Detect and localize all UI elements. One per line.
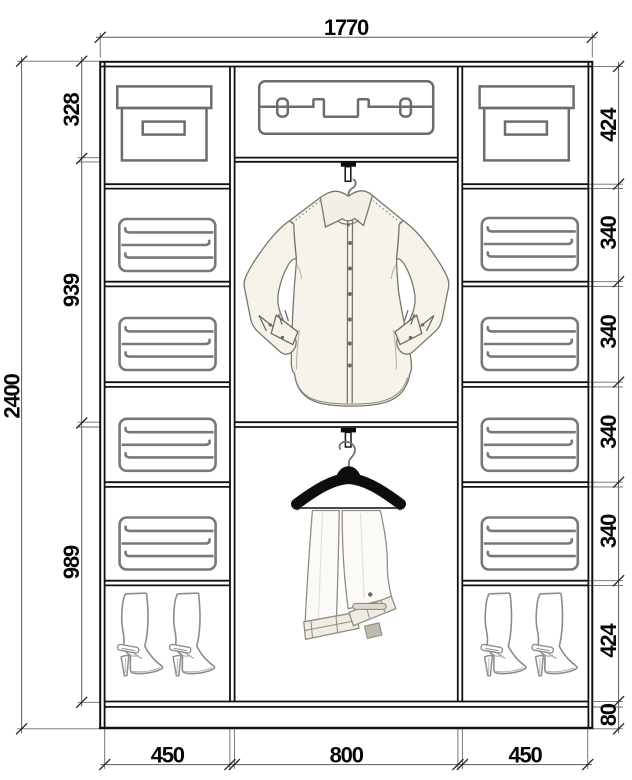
svg-text:340: 340 (596, 314, 621, 348)
svg-text:80: 80 (596, 703, 621, 726)
svg-text:340: 340 (596, 215, 621, 249)
svg-text:939: 939 (59, 273, 84, 307)
svg-text:1770: 1770 (324, 15, 369, 40)
svg-text:450: 450 (151, 743, 185, 768)
svg-text:424: 424 (596, 623, 621, 658)
svg-text:424: 424 (596, 107, 621, 142)
svg-text:328: 328 (59, 92, 84, 126)
svg-text:2400: 2400 (0, 373, 25, 418)
svg-text:340: 340 (596, 415, 621, 449)
svg-text:450: 450 (508, 743, 542, 768)
svg-text:340: 340 (596, 514, 621, 548)
svg-text:800: 800 (330, 743, 364, 768)
svg-text:989: 989 (59, 545, 84, 579)
